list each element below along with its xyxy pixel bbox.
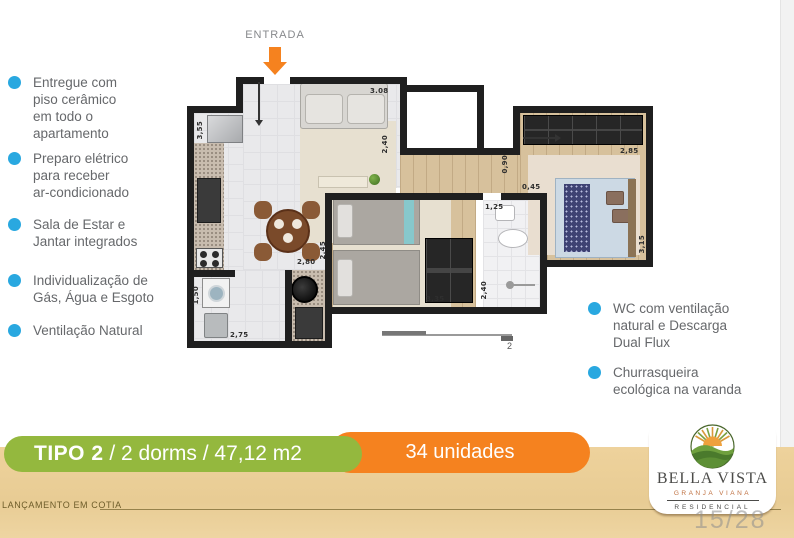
- entrance-label: ENTRADA: [233, 29, 317, 41]
- wall: [407, 85, 484, 92]
- feature-item: Individualização de Gás, Água e Esgoto: [8, 272, 154, 306]
- wall: [513, 106, 653, 113]
- shower-arm: [513, 284, 535, 286]
- footer-caption: LANÇAMENTO EM COTIA: [2, 500, 122, 510]
- type-specs: / 2 dorms / 47,12 m2: [104, 442, 302, 465]
- wall: [646, 106, 653, 267]
- feature-item: Entregue com piso cerâmico em todo o apa…: [8, 74, 117, 142]
- logo-rule: [667, 500, 759, 501]
- plate: [274, 219, 284, 229]
- dimension-label: 3.08: [370, 87, 388, 95]
- washing-machine: [202, 278, 230, 308]
- toilet: [498, 229, 528, 248]
- wall: [540, 193, 547, 314]
- wall: [187, 106, 194, 348]
- wall: [477, 85, 484, 155]
- wall: [325, 193, 332, 348]
- bullet-icon: [8, 152, 21, 165]
- wall: [513, 113, 520, 155]
- flow-arrow-icon: [555, 134, 561, 142]
- dimension-label: 2,80: [297, 258, 315, 266]
- kitchen-cabinet: [197, 178, 221, 223]
- dimension-label: 2,75: [230, 331, 248, 339]
- dimension-label: 2,45: [319, 241, 327, 259]
- wall: [290, 77, 407, 84]
- dimension-label: 1,50: [192, 286, 200, 304]
- sideboard: [318, 176, 368, 188]
- wall: [187, 270, 235, 277]
- single-bed-2: [333, 250, 420, 305]
- door-leaf-line: [258, 82, 260, 120]
- hall-floor: [400, 155, 540, 193]
- floor-plan: 3,55 3.08 2,40 0,90 2,85 0,45 1,25 2,45 …: [150, 73, 655, 353]
- wall: [400, 77, 407, 155]
- dining-chair: [254, 201, 272, 219]
- feature-item: Preparo elétrico para receber ar-condici…: [8, 150, 129, 201]
- wall: [325, 307, 547, 314]
- wall: [400, 148, 520, 155]
- page-number: 15/28: [694, 506, 767, 535]
- dimension-label: 2,85: [620, 147, 638, 155]
- feature-text: Ventilação Natural: [33, 322, 143, 339]
- dimension-label: 3,35: [426, 295, 444, 303]
- dimension-label: 2,40: [480, 281, 488, 299]
- bedroom2-wardrobe: [425, 238, 473, 303]
- flow-arrow-line: [523, 137, 555, 139]
- churrasqueira-grill: [291, 276, 318, 303]
- wall: [325, 193, 483, 200]
- dimension-label: 2,40: [381, 135, 389, 153]
- feature-text: Churrasqueira ecológica na varanda: [613, 364, 741, 398]
- feature-text: Entregue com piso cerâmico em todo o apa…: [33, 74, 117, 142]
- fridge: [207, 115, 243, 143]
- wall: [285, 270, 292, 341]
- feature-text: Individualização de Gás, Água e Esgoto: [33, 272, 154, 306]
- door-arrow-icon: [255, 120, 263, 126]
- double-bed: [555, 178, 635, 258]
- section-number: 2: [507, 341, 512, 351]
- brochure-page: Entregue com piso cerâmico em todo o apa…: [0, 0, 794, 538]
- type-banner: TIPO 2 / 2 dorms / 47,12 m2: [4, 436, 362, 472]
- feature-text: Preparo elétrico para receber ar-condici…: [33, 150, 129, 201]
- units-label: 34 unidades: [406, 441, 515, 463]
- dimension-label: 1,25: [485, 203, 503, 211]
- feature-text: Sala de Estar e Jantar integrados: [33, 216, 137, 250]
- cooktop: [196, 248, 223, 268]
- plate: [283, 233, 293, 243]
- bella-vista-emblem-icon: [690, 424, 735, 469]
- feature-item: Sala de Estar e Jantar integrados: [8, 216, 137, 250]
- logo-name: BELLA VISTA: [649, 470, 776, 488]
- dining-chair: [302, 201, 320, 219]
- logo-location: GRANJA VIANA: [649, 490, 776, 497]
- plant: [369, 174, 380, 185]
- dining-chair: [254, 243, 272, 261]
- wall: [187, 341, 332, 348]
- dimension-label: 0,90: [501, 155, 509, 173]
- varanda-cabinet: [295, 307, 323, 339]
- viewer-edge-strip: [780, 0, 794, 447]
- bullet-icon: [8, 76, 21, 89]
- bullet-icon: [588, 366, 601, 379]
- type-label: TIPO 2: [34, 442, 104, 465]
- laundry-tank: [204, 313, 228, 338]
- section-line-thick: [382, 331, 426, 335]
- plate: [292, 219, 302, 229]
- feature-item: Ventilação Natural: [8, 322, 143, 339]
- bullet-icon: [8, 324, 21, 337]
- dimension-label: 3,55: [196, 121, 204, 139]
- feature-item: Churrasqueira ecológica na varanda: [588, 364, 741, 398]
- entrance-arrow-icon: [269, 47, 281, 62]
- wall: [187, 106, 243, 113]
- wall: [540, 260, 653, 267]
- dimension-label: 0,45: [522, 183, 540, 191]
- logo-card: BELLA VISTA GRANJA VIANA RESIDENCIAL: [649, 421, 776, 514]
- wall: [501, 193, 547, 200]
- bullet-icon: [8, 274, 21, 287]
- single-bed-1: [333, 197, 420, 245]
- bullet-icon: [8, 218, 21, 231]
- dimension-label: 3,15: [638, 235, 646, 253]
- units-banner: 34 unidades: [330, 432, 590, 473]
- master-wardrobe: [523, 115, 643, 145]
